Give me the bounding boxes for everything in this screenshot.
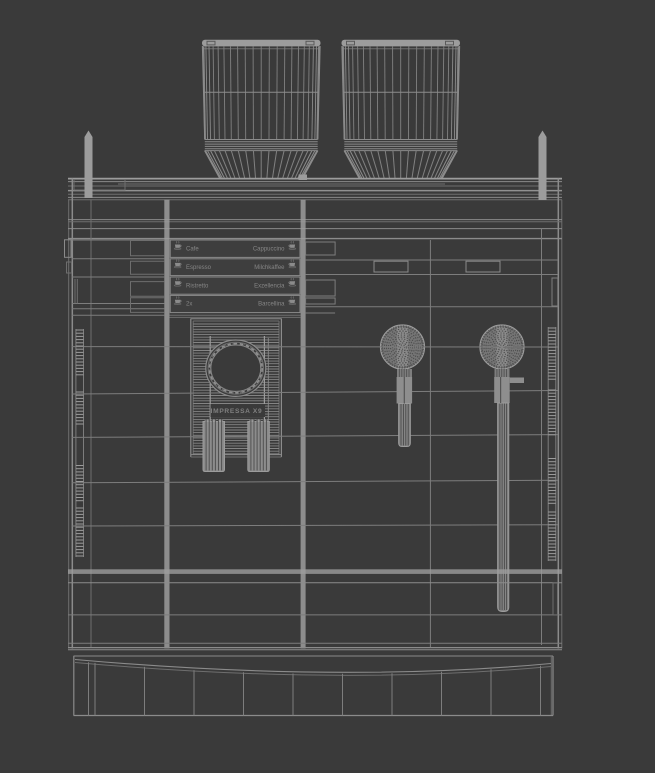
svg-text:Exzellencia: Exzellencia	[254, 283, 285, 289]
svg-text:Barcellina: Barcellina	[258, 302, 285, 308]
svg-text:2x: 2x	[186, 302, 192, 308]
svg-text:Cappuccino: Cappuccino	[253, 247, 285, 253]
svg-text:IMPRESSA X9: IMPRESSA X9	[211, 408, 263, 415]
svg-text:Espresso: Espresso	[186, 265, 212, 271]
svg-text:Milchkaffee: Milchkaffee	[254, 265, 285, 271]
svg-text:Cafe: Cafe	[186, 247, 199, 253]
svg-text:Ristretto: Ristretto	[186, 283, 209, 289]
